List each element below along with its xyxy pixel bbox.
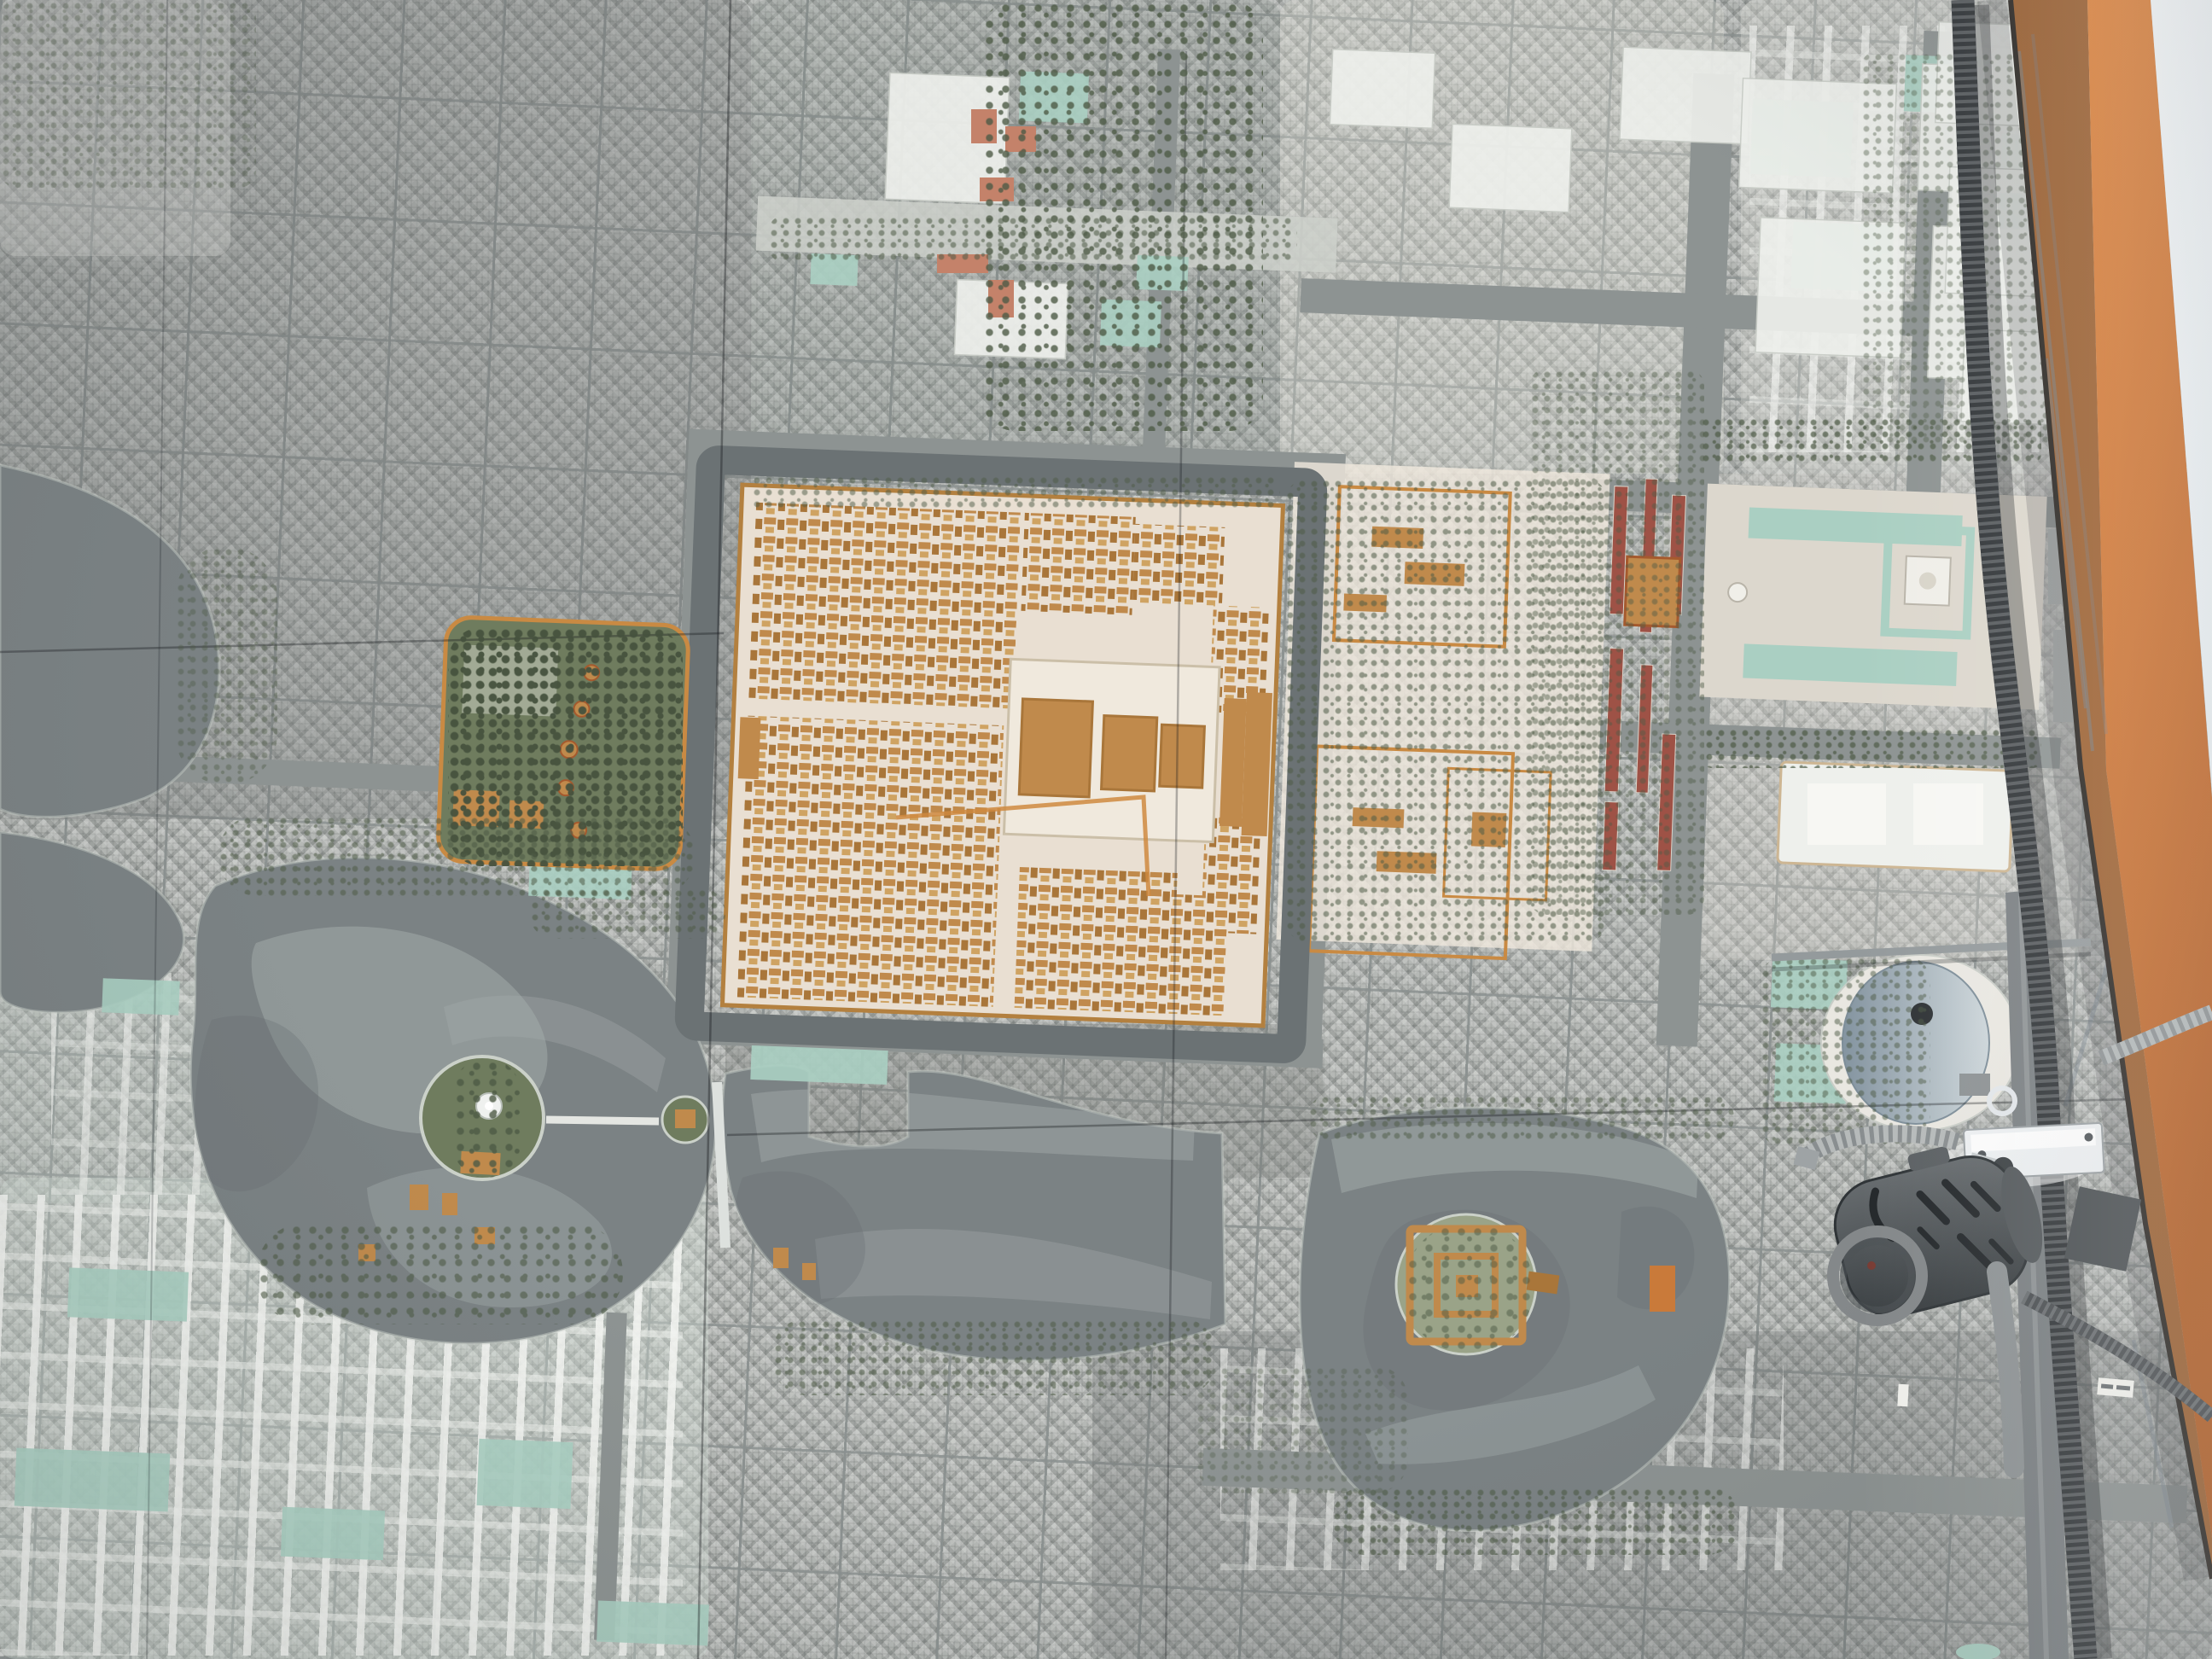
table-edge-and-light-hardware (0, 0, 2212, 1659)
safety-hook-ring (1989, 1088, 2015, 1114)
lamp-indicator-dot (1867, 1261, 1876, 1270)
inventory-sticker (2097, 1377, 2134, 1398)
beijing-scale-model-photo (0, 0, 2212, 1659)
inventory-sticker-small (1897, 1384, 1908, 1407)
drop-conduit (1997, 1272, 2014, 1468)
